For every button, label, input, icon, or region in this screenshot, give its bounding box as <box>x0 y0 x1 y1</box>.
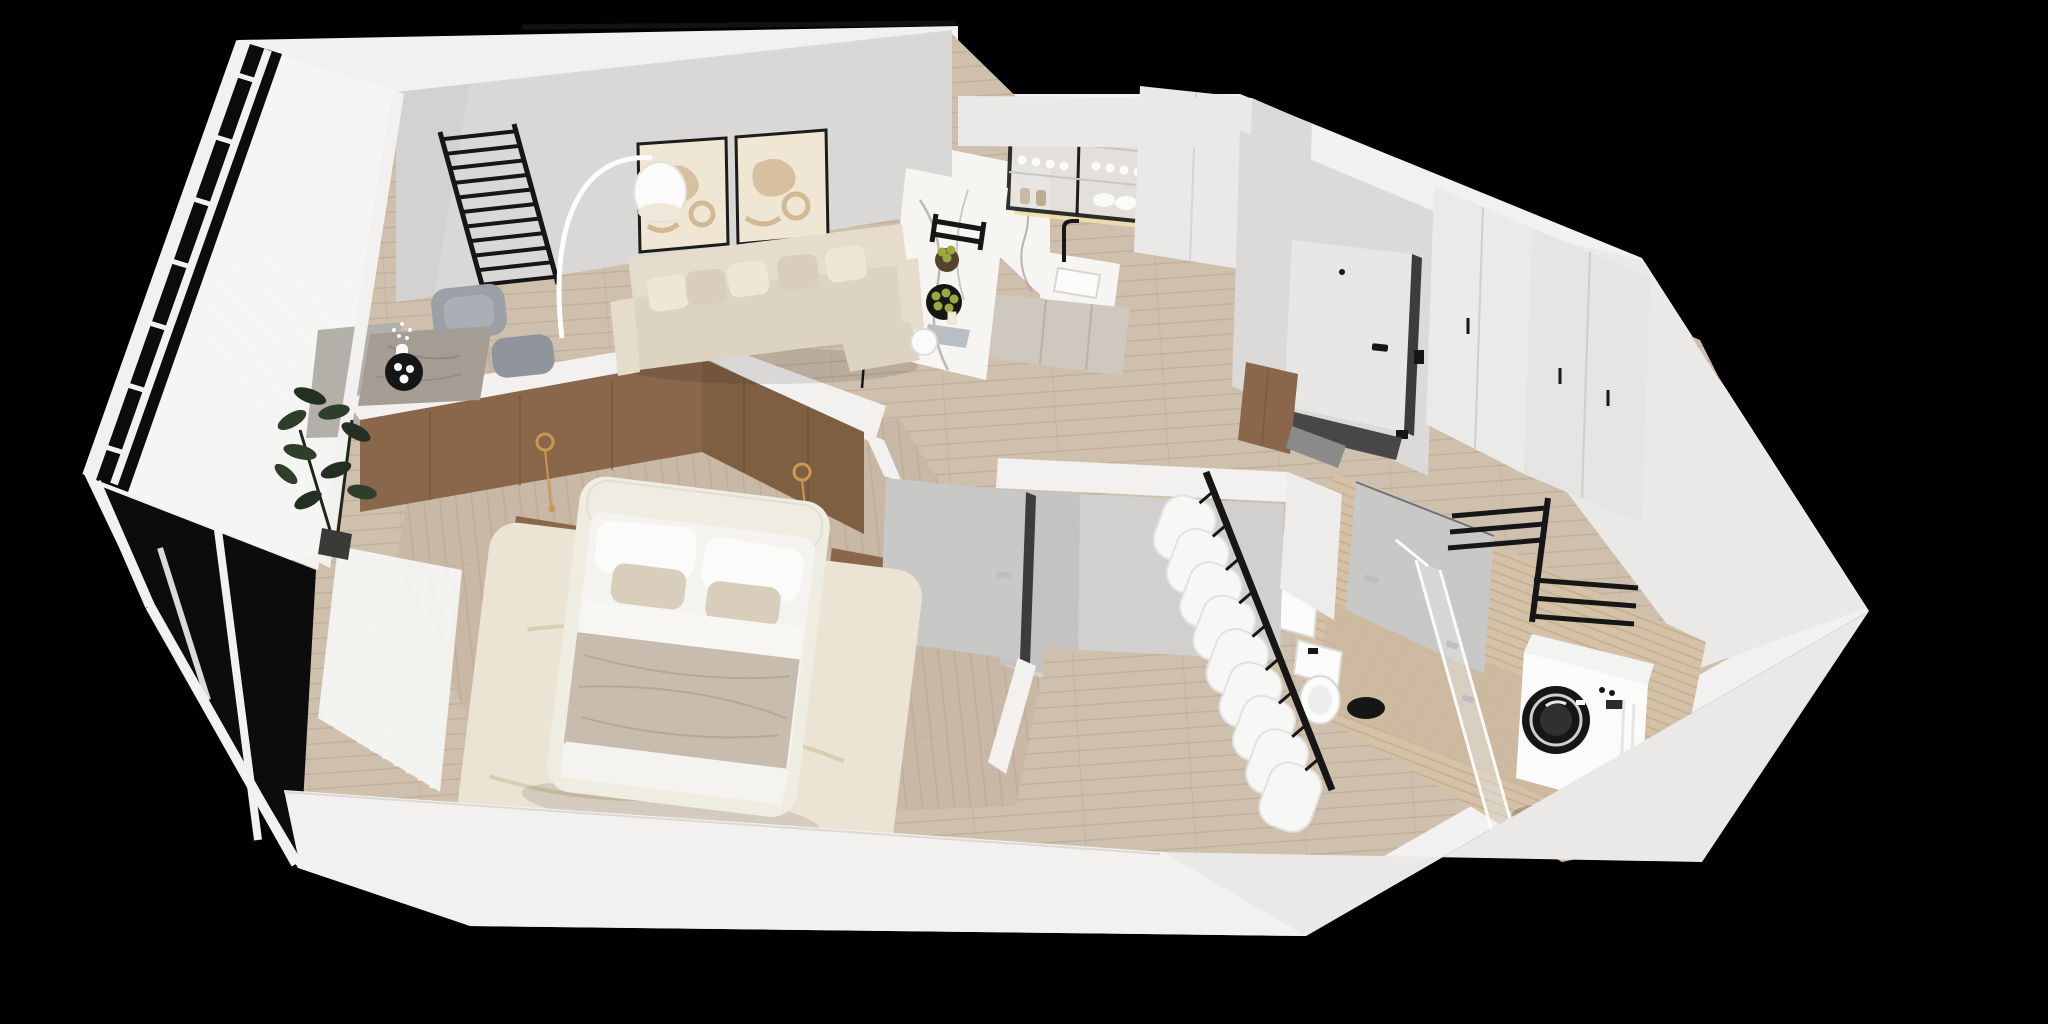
wardrobe-panel <box>1524 228 1650 524</box>
cup <box>1018 156 1027 165</box>
pear <box>945 304 954 313</box>
flush-button <box>1308 648 1318 654</box>
cup <box>1120 166 1129 175</box>
lounge-chair <box>490 333 556 379</box>
throw-pillow <box>776 253 819 291</box>
bowl <box>1115 196 1137 210</box>
pear <box>934 302 943 311</box>
jar <box>1020 188 1030 204</box>
sconce-bulb <box>549 506 556 513</box>
flower <box>405 336 409 340</box>
lamp-glow <box>638 203 682 221</box>
throw-pillow <box>726 259 770 298</box>
floorplan-scene <box>0 0 2048 1024</box>
washer-dial <box>1609 690 1615 696</box>
cup <box>1106 164 1115 173</box>
toilet-seat <box>1308 685 1332 715</box>
throw-pillow <box>684 268 727 306</box>
pear <box>943 254 952 263</box>
pear-platter <box>926 284 962 320</box>
side-table <box>911 329 937 355</box>
cup <box>1060 162 1069 171</box>
tray <box>385 353 423 391</box>
detergent-drawer <box>1606 700 1624 709</box>
marble-desk <box>358 326 492 406</box>
cup <box>1046 160 1055 169</box>
washer-dial <box>1599 687 1605 693</box>
peephole <box>1339 269 1345 275</box>
shower-stool <box>1347 697 1385 719</box>
throw-pillow <box>646 273 690 312</box>
entry-top-wall <box>958 96 1238 148</box>
pear <box>942 289 951 298</box>
door-leaf <box>1284 240 1412 432</box>
flower <box>400 322 404 326</box>
pear <box>947 246 956 255</box>
washer-latch <box>1576 700 1585 705</box>
pear <box>950 295 959 304</box>
throw-pillow <box>824 244 868 283</box>
teapot <box>400 375 409 384</box>
cup <box>1032 158 1041 167</box>
jar <box>1036 190 1046 206</box>
cup <box>394 363 402 371</box>
pear-pedestal-bowl <box>935 246 959 273</box>
washer-glass <box>1540 704 1572 736</box>
pear <box>932 292 941 301</box>
bowl <box>1093 193 1115 207</box>
cup <box>1092 162 1101 171</box>
cup <box>406 365 414 373</box>
flower <box>397 334 401 338</box>
art-frame-right <box>736 130 828 244</box>
flower <box>392 328 396 332</box>
entry-door <box>1284 240 1422 436</box>
floorplan-render <box>0 0 2048 1024</box>
flower <box>408 328 412 332</box>
water-glass <box>948 312 956 324</box>
black-tray-table <box>385 353 423 391</box>
light-switch <box>1414 350 1424 364</box>
